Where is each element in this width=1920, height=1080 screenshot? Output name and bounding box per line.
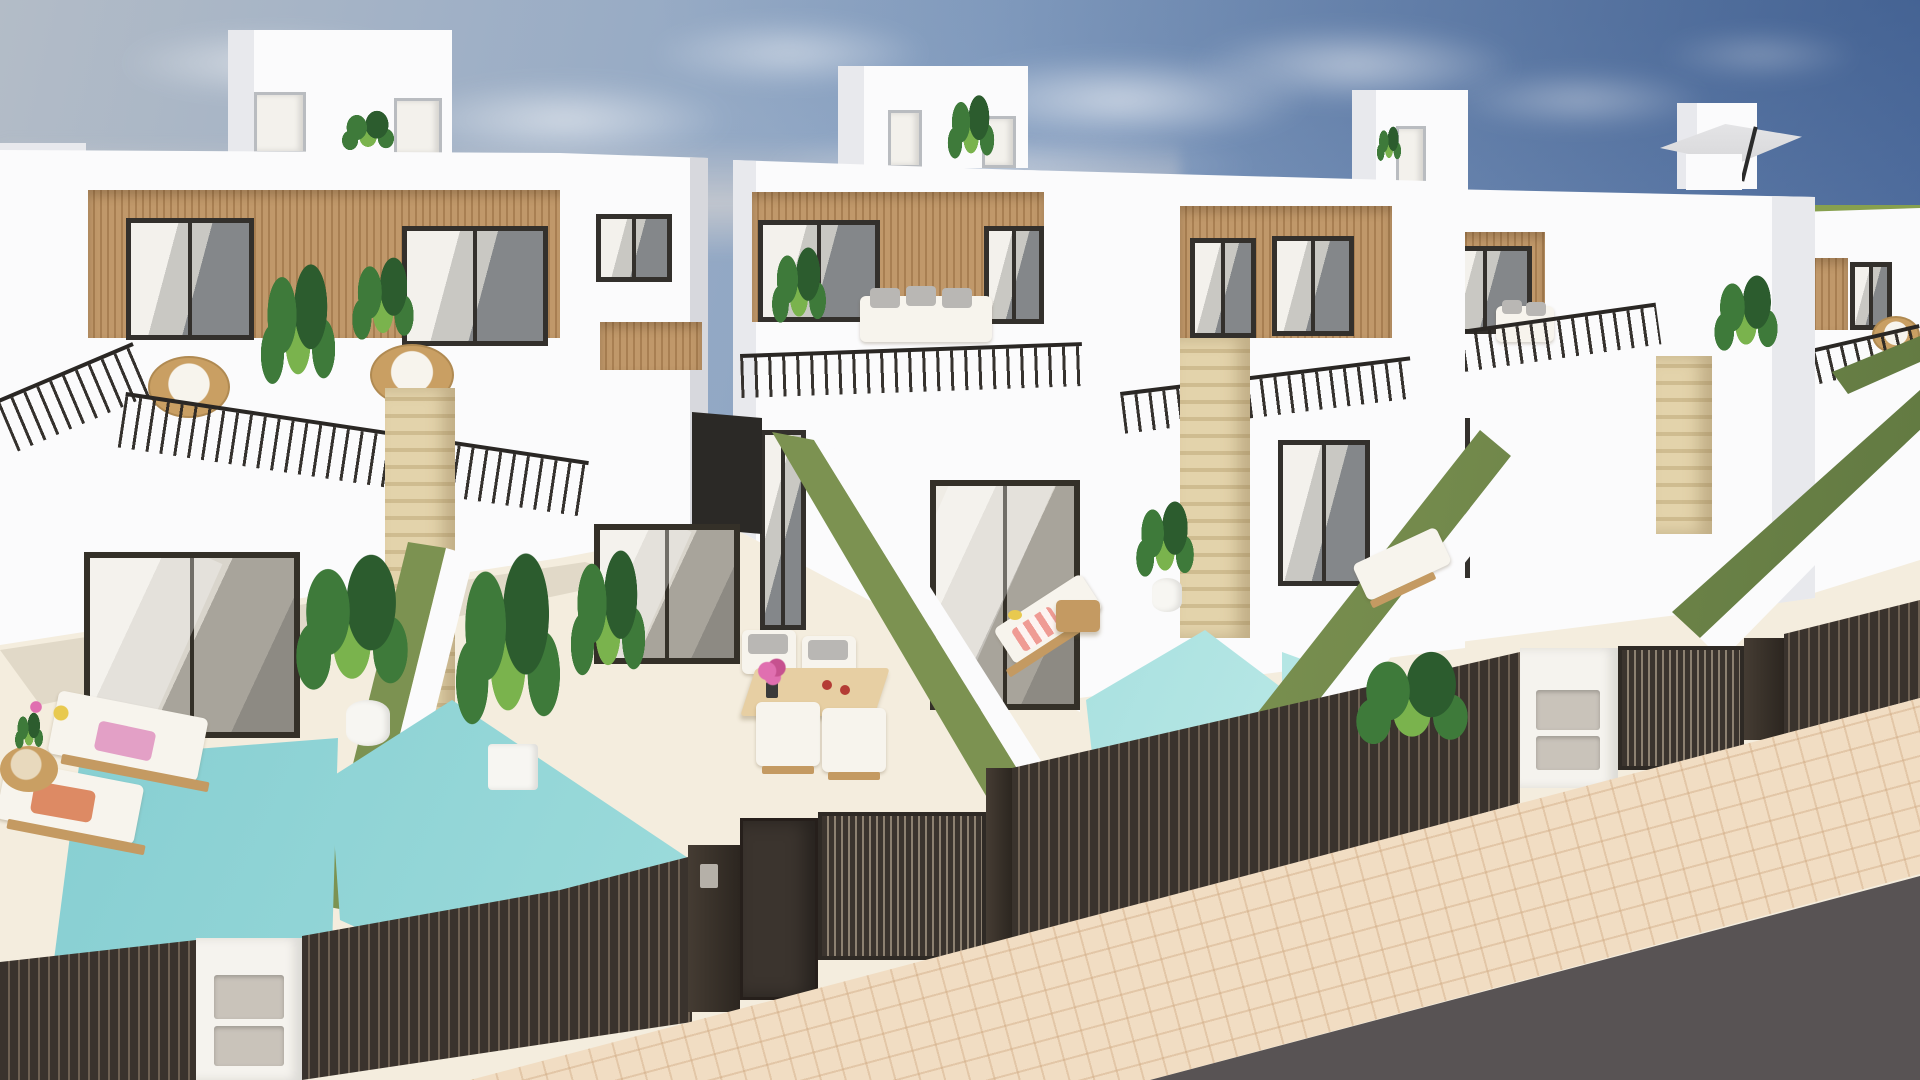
gate-palm [1352,650,1472,758]
letterbox-panel [1536,690,1600,730]
letterbox-panel [214,1026,284,1066]
house-2-penthouse-door [888,110,922,168]
dining-chair [756,702,820,766]
house-1-window [126,218,254,340]
gate-post [1744,638,1784,740]
roof-plant [340,110,396,156]
travertine-pillar-2 [1180,338,1250,638]
balcony-palm [258,262,338,402]
roof-plant [946,94,996,168]
passage-wood-band [600,322,702,370]
house-1-window [402,226,548,346]
strelitzia-plant [292,552,412,710]
cloud [1660,30,1860,80]
house-1-penthouse-door [394,98,442,156]
roof-plant [1376,126,1402,166]
flower-pot-plant [14,712,44,754]
umbrella-base-box [1686,154,1742,190]
wooden-stool [1056,600,1100,632]
house-2-penthouse-side [838,66,864,168]
red-cup [822,680,832,690]
yellow-flowers [48,704,74,722]
dining-chair [822,708,886,772]
architectural-render [0,0,1920,1080]
chair-legs [828,772,880,780]
sofa-pillow [906,286,936,306]
pink-flowers [26,700,46,714]
plant-pot-cube [488,744,538,790]
yellow-accessory [1008,610,1022,620]
chair-pillow [748,634,788,654]
letterbox-panel [1536,736,1600,770]
sofa-pillow [942,288,972,308]
intercom-plate [700,864,718,888]
balcony-palm [1712,274,1780,362]
bamboo-plant [452,550,564,750]
house-2-window [984,226,1044,324]
sofa-pillow [1502,300,1522,314]
red-cup [840,685,850,695]
chair-pillow [808,640,848,660]
balcony-palm [350,256,416,352]
letterbox-panel [214,975,284,1019]
pink-bouquet [752,654,790,688]
balcony-plant [770,246,828,334]
house-3-window [1190,238,1256,338]
gate-post [986,768,1012,944]
strelitzia-plant [1134,500,1196,588]
house-1-penthouse-door [254,92,306,154]
chair-legs [762,766,814,774]
house-1-penthouse-side [228,30,254,154]
gate-1-solid-leaf [740,818,818,1000]
plant-pot [1152,578,1182,612]
house-1-wing-window [596,214,672,282]
sofa-pillow [1526,302,1546,316]
travertine-pillar-3 [1656,356,1712,534]
plant-pot [346,700,390,746]
house-3-penthouse-side [1352,90,1376,190]
sofa-pillow [870,288,900,308]
palm-plant [568,548,648,694]
gate-1-slatted-leaf [818,812,986,960]
house-3-window [1272,236,1354,336]
cloud [1450,70,1710,130]
